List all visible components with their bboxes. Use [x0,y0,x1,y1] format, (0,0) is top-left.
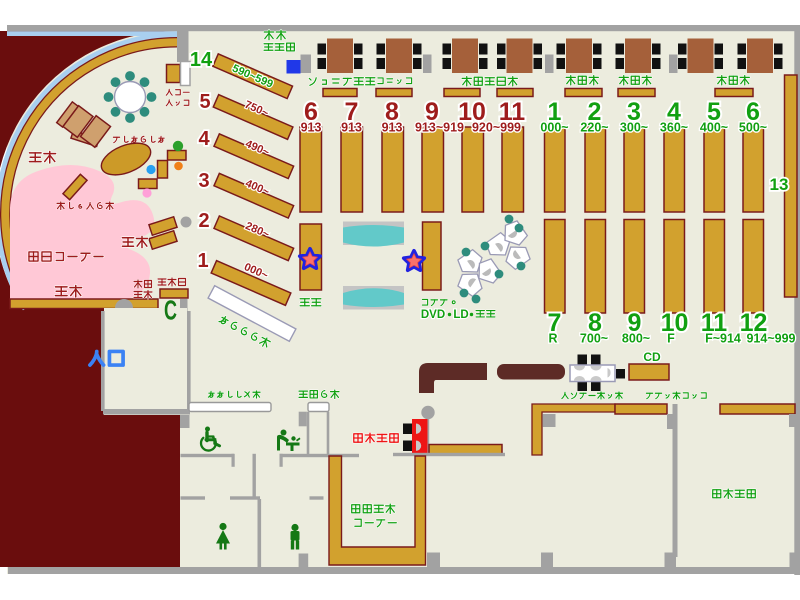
svg-text:914~999: 914~999 [746,332,795,346]
svg-text:913: 913 [382,121,403,135]
svg-text:3: 3 [198,170,209,192]
svg-text:2: 2 [198,210,209,232]
svg-text:300~: 300~ [620,121,648,135]
svg-text:000~: 000~ [540,121,568,135]
svg-text:913: 913 [341,121,362,135]
svg-text:700~: 700~ [580,332,608,346]
svg-text:F~914: F~914 [705,332,741,346]
svg-text:F: F [667,332,675,346]
svg-text:4: 4 [198,128,210,150]
svg-text:C: C [164,295,177,326]
svg-text:913~919: 913~919 [415,121,464,135]
svg-text:R: R [548,332,557,346]
svg-text:400~: 400~ [700,121,728,135]
svg-text:CD: CD [643,350,661,364]
svg-text:5: 5 [199,91,210,113]
svg-text:360~: 360~ [660,121,688,135]
svg-text:920~999: 920~999 [472,121,521,135]
svg-text:220~: 220~ [580,121,608,135]
svg-text:800~: 800~ [622,332,650,346]
svg-text:13: 13 [770,175,789,194]
svg-text:500~: 500~ [739,121,767,135]
svg-text:DVD: DVD [421,309,445,321]
svg-text:14: 14 [190,49,213,71]
svg-text:LD: LD [453,309,468,321]
svg-text:1: 1 [197,250,208,272]
svg-text:913: 913 [301,121,322,135]
